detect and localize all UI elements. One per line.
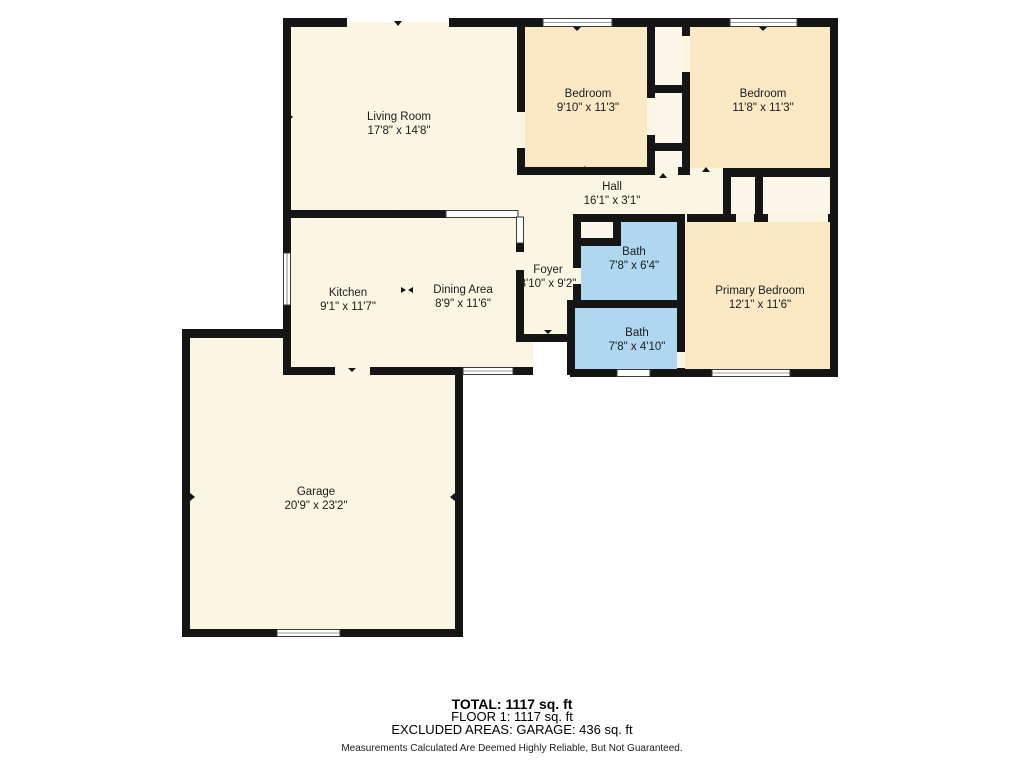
room-dims: 7'8" x 6'4" <box>609 259 659 273</box>
room-label-primary-bedroom: Primary Bedroom 12'1" x 11'6" <box>715 284 804 312</box>
wall-bath-right <box>677 214 685 352</box>
room-name: Living Room <box>367 110 431 124</box>
room-name: Hall <box>584 180 641 194</box>
hall-closet2-fill <box>763 177 828 214</box>
wall-foyer-bottom <box>516 334 572 342</box>
room-label-hall: Hall 16'1" x 3'1" <box>584 180 641 208</box>
wall-bottom-right-block <box>570 369 838 377</box>
room-label-bath-2: Bath 7'8" x 4'10" <box>609 326 666 354</box>
room-dims: 16'1" x 3'1" <box>584 194 641 208</box>
room-dims: 7'8" x 4'10" <box>609 340 666 354</box>
room-label-bedroom-1: Bedroom 9'10" x 11'3" <box>557 87 619 115</box>
wall-primary-top-a <box>687 214 736 222</box>
entry-recess <box>533 342 570 375</box>
room-name: Dining Area <box>433 283 492 297</box>
wall-left <box>283 18 291 375</box>
room-name: Bedroom <box>732 87 793 101</box>
room-dims: 20'9" x 23'2" <box>284 499 347 513</box>
wall-closet-divider2 <box>647 143 690 151</box>
bath1-notch-fill <box>581 222 613 238</box>
wall-closet-right-stub <box>682 27 690 36</box>
wall-bedroom2-bottom <box>723 168 838 177</box>
room-dims: 9'1" x 11'7" <box>320 300 376 314</box>
room-dims: 9'10" x 11'3" <box>557 101 619 115</box>
wall-garage-right <box>455 367 463 637</box>
room-dims: 8'9" x 11'6" <box>433 297 492 311</box>
window-bath2-bottom <box>617 370 650 377</box>
room-name: Bath <box>609 245 659 259</box>
room-label-living-room: Living Room 17'8" x 14'8" <box>367 110 431 138</box>
wall-living-bottom <box>283 210 446 218</box>
room-name: Bath <box>609 326 666 340</box>
room-name: Garage <box>284 485 347 499</box>
disclaimer-text: Measurements Calculated Are Deemed Highl… <box>0 743 1024 754</box>
floorplan-page: Living Room 17'8" x 14'8" Bedroom 9'10" … <box>0 0 1024 768</box>
garage-fill <box>186 334 459 633</box>
room-label-bath-1: Bath 7'8" x 6'4" <box>609 245 659 273</box>
room-name: Primary Bedroom <box>715 284 804 298</box>
room-label-foyer: Foyer 3'10" x 9'2" <box>520 263 577 291</box>
wall-top-left <box>283 18 347 27</box>
room-dims: 12'1" x 11'6" <box>715 298 804 312</box>
wall-bath-divider <box>567 300 685 308</box>
wall-garage-left <box>182 329 190 637</box>
excluded-area-text: EXCLUDED AREAS: GARAGE: 436 sq. ft <box>0 722 1024 737</box>
wall-garage-top <box>182 329 291 338</box>
hall-closet1-fill <box>731 177 755 214</box>
room-label-garage: Garage 20'9" x 23'2" <box>284 485 347 513</box>
floorplan-drawing <box>0 0 1024 768</box>
room-name: Kitchen <box>320 286 376 300</box>
room-label-bedroom-2: Bedroom 11'8" x 11'3" <box>732 87 793 115</box>
room-label-kitchen: Kitchen 9'1" x 11'7" <box>320 286 376 314</box>
opening-living-kitchen-v <box>517 217 524 243</box>
wall-bath1-notch-right <box>613 222 621 246</box>
wall-bath-right-stub <box>677 368 685 377</box>
wall-primary-top-b <box>754 214 768 222</box>
room-name: Bedroom <box>557 87 619 101</box>
wall-right <box>830 18 838 377</box>
opening-living-kitchen-h <box>446 211 518 218</box>
wall-bath2-left <box>567 308 575 375</box>
room-label-dining-area: Dining Area 8'9" x 11'6" <box>433 283 492 311</box>
room-dims: 17'8" x 14'8" <box>367 124 431 138</box>
wall-bath1-top <box>573 214 677 222</box>
wall-bottom-kitchen-a <box>283 367 335 375</box>
wall-closet-left-lower <box>647 135 655 175</box>
wall-primary-top-c <box>828 214 838 222</box>
wall-bedroom1-left-upper <box>517 18 525 112</box>
room-dims: 11'8" x 11'3" <box>732 101 793 115</box>
wall-closet-divider1 <box>647 85 690 93</box>
room-dims: 3'10" x 9'2" <box>520 277 577 291</box>
room-name: Foyer <box>520 263 577 277</box>
